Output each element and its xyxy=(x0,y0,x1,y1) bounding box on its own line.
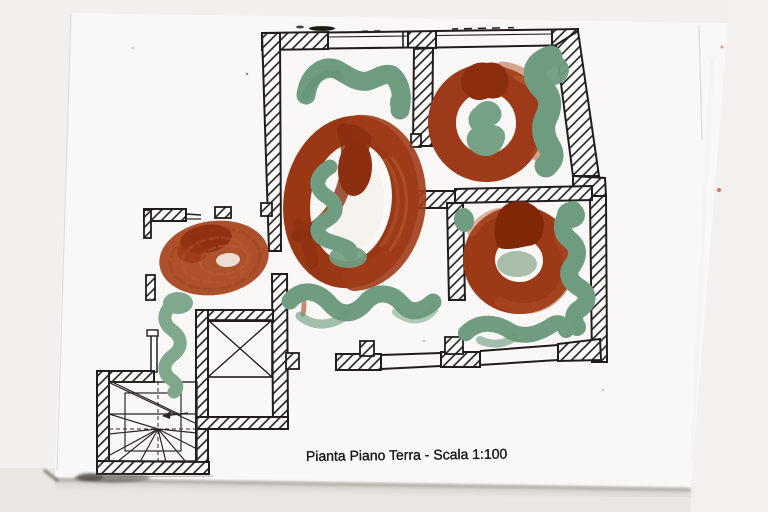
svg-text:Pianta Piano Terra - Scala 1:1: Pianta Piano Terra - Scala 1:100 xyxy=(306,446,508,464)
